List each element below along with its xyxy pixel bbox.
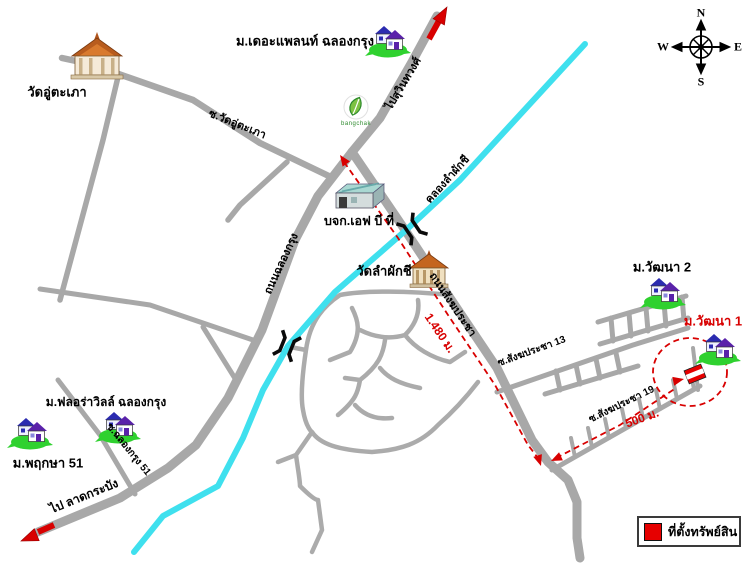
compass-rose-icon bbox=[672, 20, 730, 74]
label-wat-u-taphao: วัดอู่ตะเภา bbox=[27, 86, 86, 99]
route-soi19-end-arrow bbox=[672, 375, 685, 386]
legend-property-label: ที่ตั้งทรัพย์สิน bbox=[668, 522, 737, 542]
label-pruksa51: ม.พฤกษา 51 bbox=[13, 457, 83, 470]
road-west-connector-1 bbox=[40, 289, 253, 340]
housing-icon-wattana1 bbox=[695, 334, 741, 366]
bangchak-logo-icon bbox=[344, 95, 368, 119]
legend-box: ที่ตั้งทรัพย์สิน bbox=[637, 516, 741, 547]
road-soi-sangkhapracha-13 bbox=[497, 328, 688, 392]
housing-icon-wattana2 bbox=[640, 278, 686, 310]
compass-s: S bbox=[698, 75, 705, 90]
label-floraville: ม.ฟลอร่าวิลล์ ฉลองกรุง bbox=[46, 396, 166, 408]
label-the-plant: ม.เดอะแพลนท์ ฉลองกรุง bbox=[236, 35, 374, 48]
road-lamphakchi-lanes bbox=[278, 292, 478, 552]
property-location-map: วัดอู่ตะเภา ม.เดอะแพลนท์ ฉลองกรุง bangch… bbox=[0, 0, 750, 573]
label-wattana2: ม.วัฒนา 2 bbox=[633, 261, 691, 274]
label-wattana1: ม.วัฒนา 1 bbox=[684, 315, 742, 328]
legend-property-swatch bbox=[644, 523, 662, 541]
road-branch-left bbox=[228, 162, 287, 220]
label-fbt-company: บจก.เอฟ บี ที่ bbox=[324, 215, 394, 228]
factory-icon-fbt bbox=[336, 183, 384, 208]
compass-e: E bbox=[734, 40, 742, 55]
label-bangchak: bangchak bbox=[341, 121, 371, 127]
housing-icon-pruksa51 bbox=[7, 418, 53, 450]
temple-icon-wat-u-taphao bbox=[71, 32, 123, 79]
compass-w: W bbox=[657, 40, 669, 55]
compass-n: N bbox=[697, 6, 706, 21]
label-wat-lam-phak-chi: วัดลำผักชี bbox=[356, 265, 411, 278]
road-left-lane bbox=[60, 77, 118, 300]
road-network bbox=[38, 16, 700, 558]
property-marker bbox=[684, 364, 706, 384]
